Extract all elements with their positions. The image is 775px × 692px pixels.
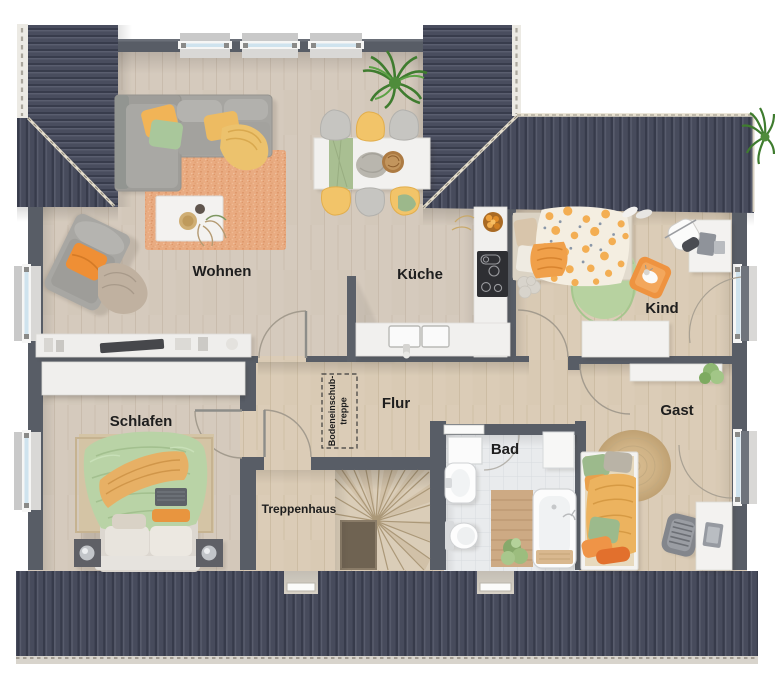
svg-text:Wohnen: Wohnen (193, 263, 252, 280)
svg-text:Küche: Küche (397, 266, 443, 283)
svg-text:treppe: treppe (339, 397, 349, 425)
svg-text:Treppenhaus: Treppenhaus (262, 502, 337, 516)
svg-text:Flur: Flur (382, 395, 410, 412)
svg-text:Kind: Kind (645, 300, 678, 317)
svg-text:Bad: Bad (491, 441, 519, 458)
svg-text:Schlafen: Schlafen (110, 413, 173, 430)
svg-text:Gast: Gast (660, 402, 693, 419)
svg-text:Bodeneinschub-: Bodeneinschub- (327, 376, 337, 447)
